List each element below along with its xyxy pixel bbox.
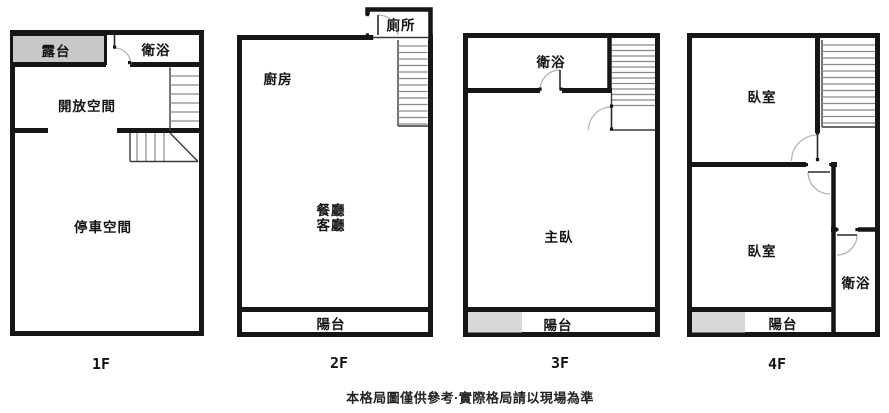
bedroom-lower-door: [805, 163, 833, 194]
room-label-master: 主臥: [545, 226, 574, 246]
floorplan-2f: 廁所 廚房 餐廳 客廳 陽台: [235, 5, 435, 337]
floor-label-3f: 3F: [551, 354, 569, 372]
floorplan-4f: 臥室 臥室 衛浴 陽台: [685, 31, 885, 341]
disclaimer-caption: 本格局圖僅供參考·實際格局請以現場為準: [346, 388, 594, 407]
floor-label-1f: 1F: [92, 355, 110, 373]
balcony: [687, 310, 832, 333]
room-label-open-space: 開放空間: [58, 95, 116, 115]
floorplan-page: 露台 衛浴 開放空間 停車空間: [0, 0, 889, 413]
room-label-bedroom-lower: 臥室: [748, 240, 777, 260]
staircase: [398, 40, 428, 126]
stair-landing-edge: [373, 35, 428, 41]
room-label-toilet: 廁所: [387, 14, 416, 34]
room-label-balcony: 陽台: [769, 313, 798, 333]
terrace-box: [10, 35, 202, 65]
outer-walls: [13, 33, 202, 334]
room-label-balcony: 陽台: [544, 314, 573, 334]
staircase: [130, 68, 199, 162]
bathroom-door: [113, 35, 131, 65]
floorplan-2f-drawing: [235, 5, 435, 337]
floor-label-4f: 4F: [768, 355, 786, 373]
room-label-bath: 衛浴: [842, 272, 871, 292]
floorplan-4f-drawing: [685, 31, 885, 341]
room-label-kitchen: 廚房: [264, 68, 293, 88]
room-label-bath: 衛浴: [142, 39, 171, 59]
room-label-balcony: 陽台: [317, 313, 346, 333]
floorplan-3f: 衛浴 主臥 陽台: [461, 31, 663, 341]
room-label-parking: 停車空間: [74, 216, 132, 236]
floorplan-3f-drawing: [461, 31, 663, 341]
room-label-bedroom-upper: 臥室: [748, 86, 777, 106]
room-label-bath: 衛浴: [537, 51, 566, 71]
room-label-terrace: 露台: [42, 40, 71, 60]
floorplan-1f: 露台 衛浴 開放空間 停車空間: [8, 28, 206, 340]
staircase: [612, 45, 656, 130]
outer-walls: [466, 36, 658, 335]
room-label-living: 客廳: [317, 214, 346, 234]
stair-door: [589, 105, 614, 131]
bath-door: [539, 70, 563, 91]
bedroom-upper-door: [792, 132, 820, 162]
staircase: [822, 40, 876, 127]
floorplan-1f-drawing: [8, 28, 206, 340]
floor-label-2f: 2F: [330, 354, 348, 372]
bath-door: [835, 228, 858, 255]
